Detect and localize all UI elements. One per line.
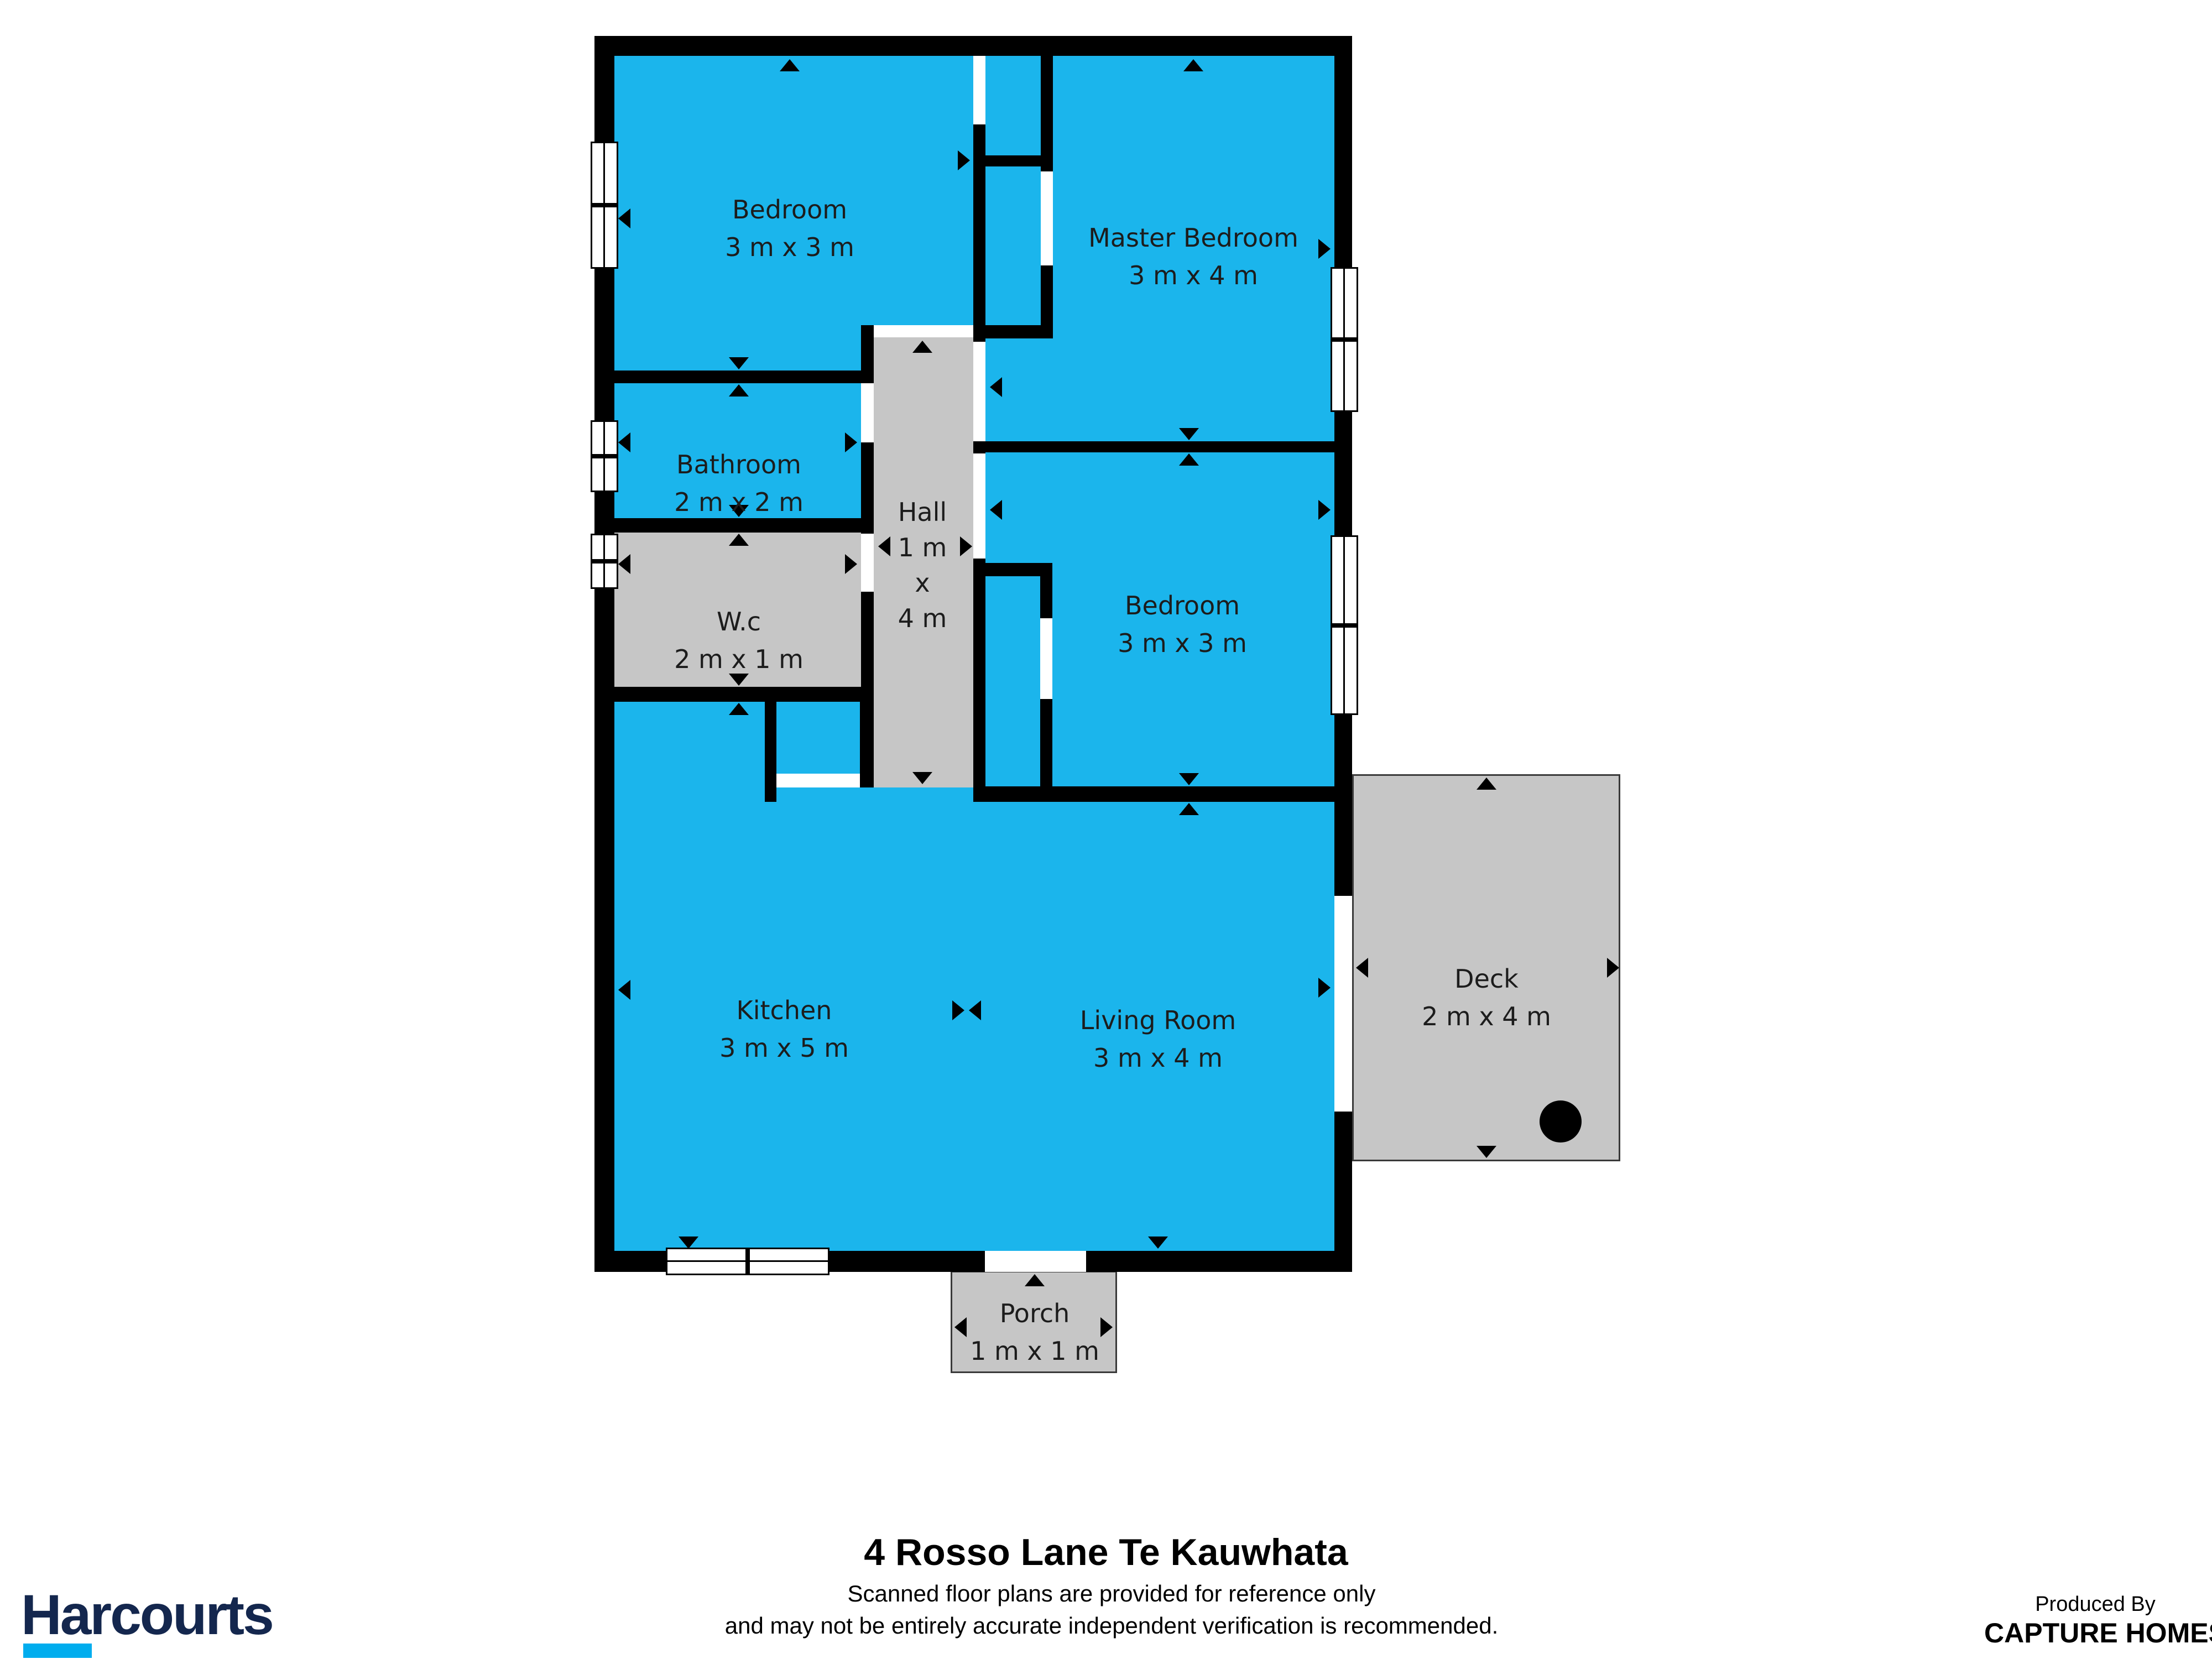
door-hall-wc (861, 534, 874, 592)
room-dims: 4 m (898, 601, 947, 636)
dim-arrow (969, 1000, 981, 1020)
dim-arrow (729, 703, 749, 715)
dim-arrow (1179, 803, 1199, 815)
room-name: Bedroom (725, 191, 854, 228)
label-kitchen: Kitchen 3 m x 5 m (719, 992, 849, 1067)
dim-arrow (990, 377, 1002, 397)
room-dims: 3 m x 3 m (1118, 624, 1247, 662)
room-name: Bedroom (1118, 587, 1247, 624)
door-wardrobe-bedroom1 (973, 56, 985, 124)
kitchen-nook-floor (776, 702, 860, 774)
room-name: Bathroom (674, 446, 804, 483)
room-dims: x (898, 565, 947, 601)
room-kitchen-floor-mid (776, 787, 973, 802)
room-kitchen-floor-left (614, 702, 765, 802)
dim-arrow (618, 432, 630, 452)
harcourts-logo: Harcourts (21, 1583, 273, 1647)
dim-arrow (679, 1237, 698, 1249)
label-bathroom: Bathroom 2 m x 2 m (674, 446, 804, 521)
dim-arrow (952, 1000, 964, 1020)
dim-arrow (1318, 239, 1331, 259)
label-living-room: Living Room 3 m x 4 m (1080, 1001, 1236, 1077)
room-name: Master Bedroom (1088, 219, 1298, 257)
dim-arrow (1356, 958, 1368, 978)
dim-arrow (729, 357, 749, 369)
door-hall-bathroom (861, 383, 874, 442)
dim-arrow (1607, 958, 1619, 978)
dim-arrow (878, 536, 890, 556)
wardrobe-bedroom1-floor (985, 56, 1041, 155)
label-bedroom2: Bedroom 3 m x 3 m (1118, 587, 1247, 662)
window-kitchen-bottom (666, 1248, 830, 1275)
dim-arrow (729, 384, 749, 397)
room-dims: 3 m x 4 m (1088, 257, 1298, 294)
room-dims: 1 m x 1 m (970, 1332, 1099, 1370)
label-hall: Hall 1 m x 4 m (898, 494, 947, 636)
dim-arrow (960, 536, 972, 556)
dim-arrow (1179, 773, 1199, 785)
label-master-bedroom: Master Bedroom 3 m x 4 m (1088, 219, 1298, 294)
dim-arrow (1025, 1274, 1045, 1286)
label-wc: W.c 2 m x 1 m (674, 603, 804, 678)
door-kitchen-nook (776, 774, 860, 787)
door-porch-entry (985, 1251, 1086, 1272)
dim-arrow (958, 150, 970, 170)
harcourts-logo-underline (23, 1644, 92, 1658)
room-name: Porch (970, 1295, 1099, 1332)
dim-arrow (618, 980, 630, 1000)
label-deck: Deck 2 m x 4 m (1422, 960, 1551, 1035)
window-master-right (1331, 267, 1358, 412)
producer-credit: Produced By CAPTURE HOMES (1984, 1592, 2206, 1649)
dim-arrow (845, 554, 857, 574)
produced-by-label: Produced By (1984, 1592, 2206, 1617)
room-name: W.c (674, 603, 804, 640)
dim-arrow (729, 534, 749, 546)
label-porch: Porch 1 m x 1 m (970, 1295, 1099, 1370)
opening-living-deck (1334, 896, 1352, 1112)
dim-arrow (618, 554, 630, 574)
door-hall-master (973, 342, 985, 441)
dim-arrow (912, 341, 932, 353)
dim-arrow (1148, 1237, 1168, 1249)
door-hall-bedroom2 (973, 453, 985, 559)
dim-arrow (990, 500, 1002, 520)
dim-arrow (780, 59, 800, 71)
dim-arrow (912, 772, 932, 784)
dim-arrow (1477, 778, 1496, 790)
room-name: Living Room (1080, 1001, 1236, 1039)
page-title: 4 Rosso Lane Te Kauwhata (864, 1531, 1348, 1574)
dim-arrow (1477, 1146, 1496, 1158)
room-dims: 2 m x 1 m (674, 640, 804, 678)
room-dims: 3 m x 4 m (1080, 1039, 1236, 1077)
window-bedroom2-right (1331, 535, 1358, 715)
room-dims: 3 m x 3 m (725, 228, 854, 266)
dim-arrow (954, 1317, 967, 1337)
dim-arrow (845, 432, 857, 452)
dim-arrow (1179, 453, 1199, 466)
room-master-floor-lower (985, 338, 1334, 441)
dim-arrow (1179, 428, 1199, 440)
dim-arrow (1183, 59, 1203, 71)
dim-arrow (1318, 978, 1331, 998)
room-dims: 3 m x 5 m (719, 1029, 849, 1067)
wardrobe-master-floor (985, 166, 1041, 325)
dim-arrow (1100, 1317, 1113, 1337)
floorplan-page: Bedroom 3 m x 3 m Master Bedroom 3 m x 4… (0, 0, 2212, 1659)
room-dims: 2 m x 2 m (674, 483, 804, 521)
disclaimer-line-2: and may not be entirely accurate indepen… (725, 1613, 1498, 1639)
dim-arrow (618, 208, 630, 228)
dim-arrow (1318, 500, 1331, 520)
window-bedroom1-left (591, 142, 618, 269)
label-bedroom1: Bedroom 3 m x 3 m (725, 191, 854, 266)
room-name: Deck (1422, 960, 1551, 998)
disclaimer-line-1: Scanned floor plans are provided for ref… (848, 1580, 1376, 1607)
window-wc-left (591, 534, 618, 589)
room-dims: 1 m (898, 530, 947, 565)
closet-wall-top (985, 563, 1052, 576)
door-closet-bedroom2 (1040, 618, 1052, 699)
producer-name: CAPTURE HOMES (1984, 1617, 2206, 1649)
window-bathroom-left (591, 420, 618, 492)
room-name: Kitchen (719, 992, 849, 1029)
room-dims: 2 m x 4 m (1422, 998, 1551, 1035)
door-bedroom1-entry (874, 325, 973, 337)
deck-post-marker (1540, 1100, 1582, 1142)
room-name: Hall (898, 494, 947, 530)
door-wardrobe-master (1041, 171, 1053, 265)
